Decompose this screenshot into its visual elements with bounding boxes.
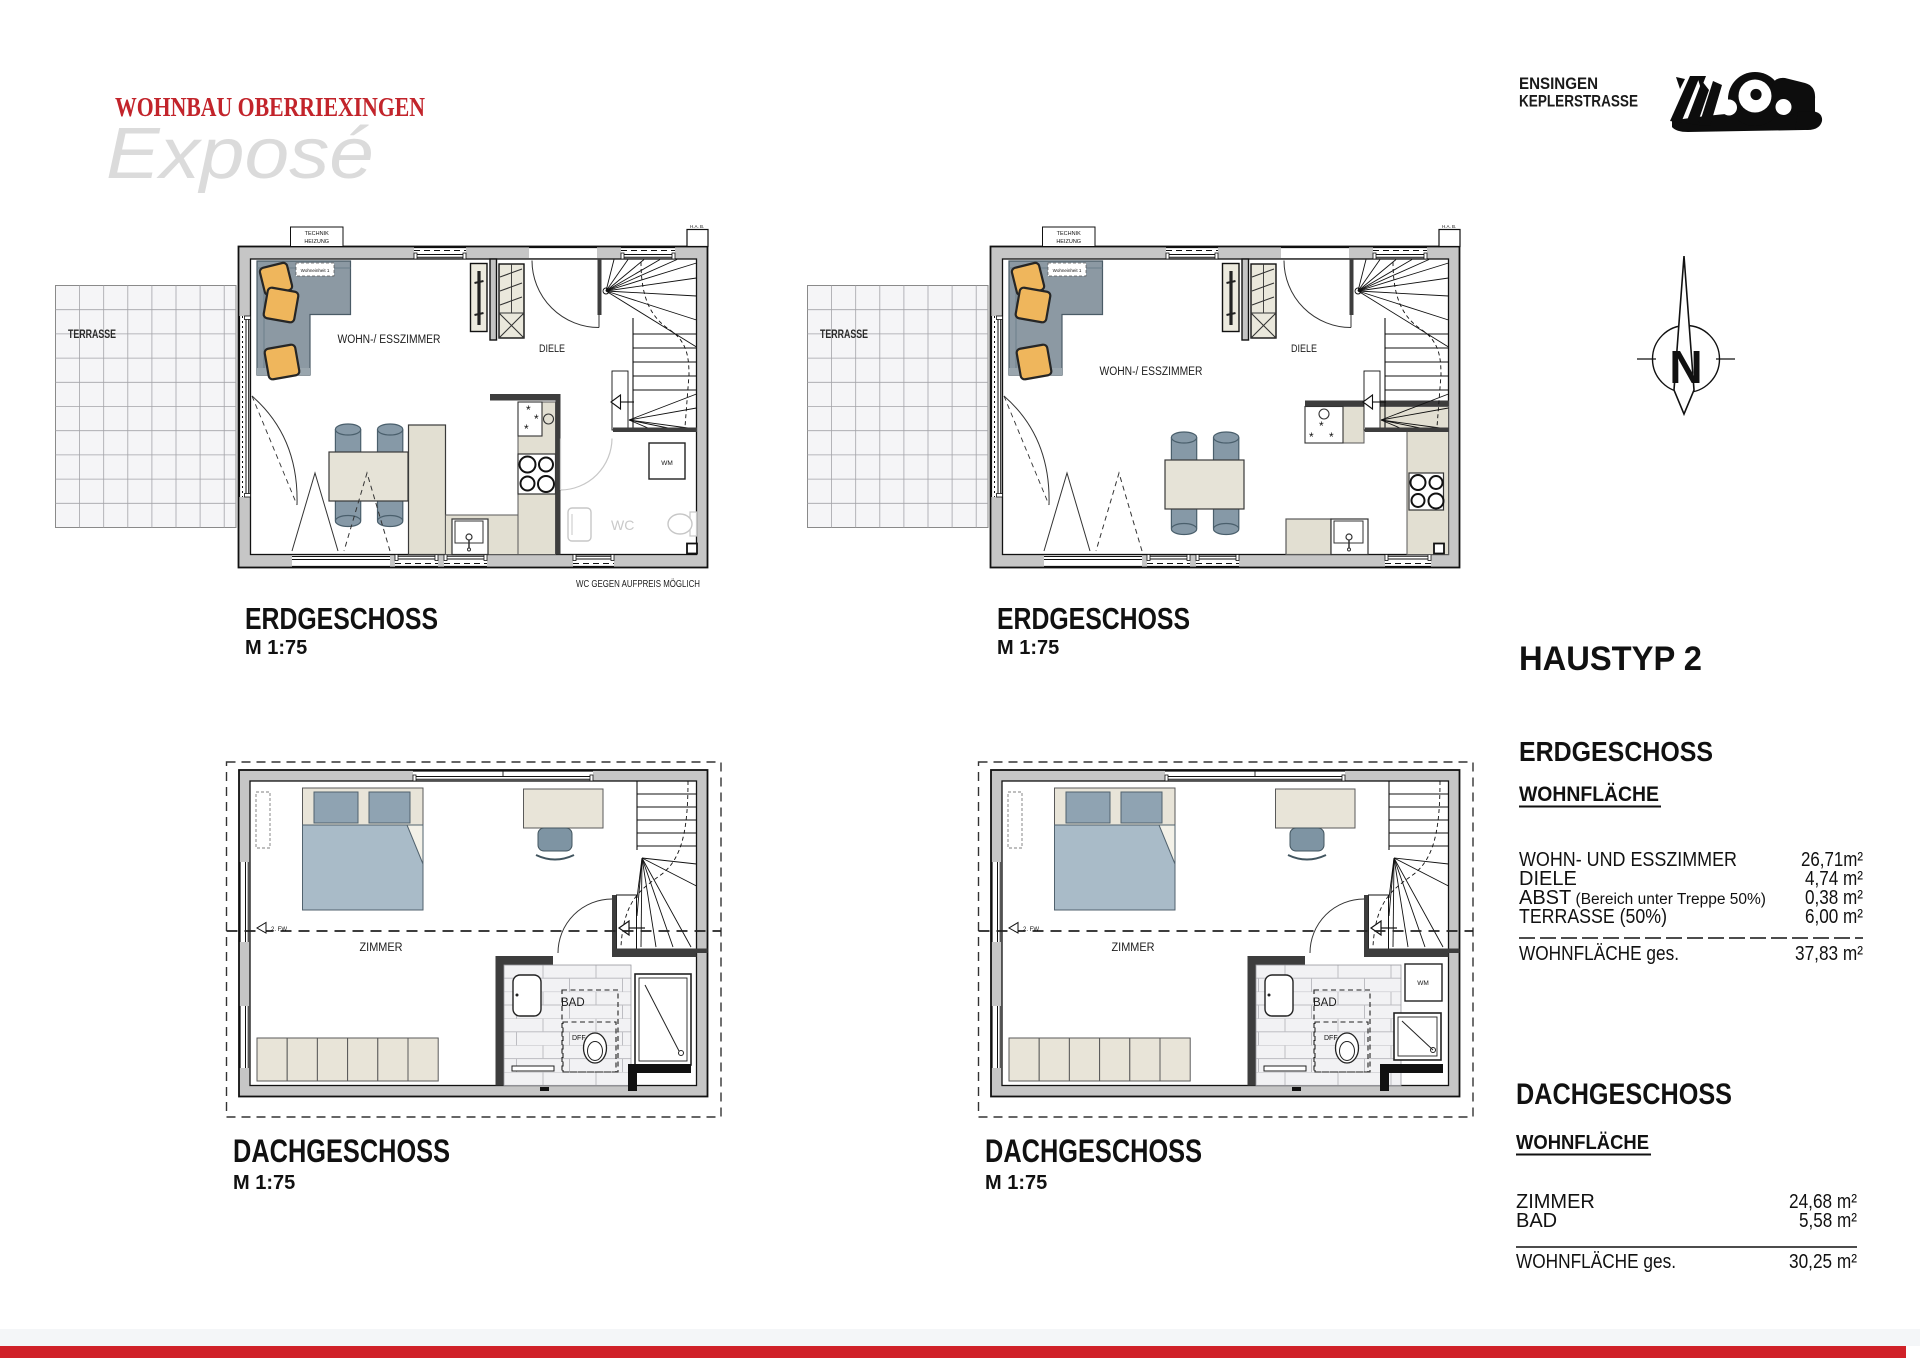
svg-text:TERRASSE: TERRASSE bbox=[68, 329, 116, 341]
svg-text:BAD: BAD bbox=[561, 997, 585, 1009]
svg-text:TECHNIK: TECHNIK bbox=[1057, 231, 1081, 237]
svg-text:6,00 m²: 6,00 m² bbox=[1805, 906, 1863, 928]
svg-text:37,83 m²: 37,83 m² bbox=[1795, 943, 1863, 965]
svg-text:HEIZUNG: HEIZUNG bbox=[304, 239, 329, 245]
svg-text:ZIMMER: ZIMMER bbox=[360, 942, 403, 954]
svg-text:ERDGESCHOSS: ERDGESCHOSS bbox=[245, 601, 438, 636]
svg-text:ENSINGEN: ENSINGEN bbox=[1519, 74, 1598, 93]
svg-text:WOHNFLÄCHE: WOHNFLÄCHE bbox=[1516, 1131, 1649, 1154]
svg-text:DIELE: DIELE bbox=[539, 343, 565, 355]
svg-text:BAD: BAD bbox=[1516, 1210, 1557, 1232]
svg-text:*: * bbox=[1329, 430, 1334, 444]
svg-text:ZIMMER: ZIMMER bbox=[1112, 942, 1155, 954]
svg-text:TERRASSE (50%): TERRASSE (50%) bbox=[1519, 906, 1667, 928]
svg-text:BAD: BAD bbox=[1313, 997, 1337, 1009]
svg-text:M 1:75: M 1:75 bbox=[245, 637, 307, 659]
svg-text:5,58 m²: 5,58 m² bbox=[1799, 1210, 1857, 1232]
svg-text:DACHGESCHOSS: DACHGESCHOSS bbox=[1516, 1078, 1732, 1111]
svg-text:2. FW: 2. FW bbox=[271, 927, 287, 933]
svg-text:*: * bbox=[1319, 419, 1324, 433]
svg-text:WOHNFLÄCHE ges.: WOHNFLÄCHE ges. bbox=[1516, 1251, 1676, 1273]
svg-text:DACHGESCHOSS: DACHGESCHOSS bbox=[985, 1133, 1202, 1169]
svg-text:TERRASSE: TERRASSE bbox=[820, 329, 868, 341]
svg-text:KEPLERSTRASSE: KEPLERSTRASSE bbox=[1519, 92, 1638, 111]
svg-text:ERDGESCHOSS: ERDGESCHOSS bbox=[1519, 736, 1713, 767]
svg-text:2. FW: 2. FW bbox=[1023, 927, 1039, 933]
svg-text:H.A. B.: H.A. B. bbox=[690, 224, 704, 229]
svg-text:H.A. B.: H.A. B. bbox=[1442, 224, 1456, 229]
svg-text:M 1:75: M 1:75 bbox=[997, 637, 1059, 659]
svg-text:WM: WM bbox=[661, 460, 673, 467]
svg-text:WOHN-/ ESSZIMMER: WOHN-/ ESSZIMMER bbox=[1100, 366, 1203, 378]
svg-text:WM: WM bbox=[1417, 980, 1429, 987]
svg-text:WOHNFLÄCHE: WOHNFLÄCHE bbox=[1519, 783, 1659, 806]
svg-text:WC GEGEN AUFPREIS MÖGLICH: WC GEGEN AUFPREIS MÖGLICH bbox=[576, 578, 700, 590]
svg-text:DACHGESCHOSS: DACHGESCHOSS bbox=[233, 1133, 450, 1169]
svg-text:DFF: DFF bbox=[1324, 1035, 1338, 1042]
svg-text:WOHNFLÄCHE ges.: WOHNFLÄCHE ges. bbox=[1519, 943, 1679, 965]
svg-text:M 1:75: M 1:75 bbox=[985, 1172, 1047, 1194]
svg-text:WC: WC bbox=[611, 517, 634, 533]
svg-text:HAUSTYP 2: HAUSTYP 2 bbox=[1519, 640, 1702, 678]
svg-text:ERDGESCHOSS: ERDGESCHOSS bbox=[997, 601, 1190, 636]
svg-text:*: * bbox=[524, 422, 529, 436]
svg-text:N: N bbox=[1669, 341, 1702, 393]
svg-text:Exposé: Exposé bbox=[106, 114, 374, 194]
svg-text:Wohneinheit 1: Wohneinheit 1 bbox=[301, 268, 330, 273]
svg-text:*: * bbox=[534, 412, 539, 426]
svg-text:HEIZUNG: HEIZUNG bbox=[1056, 239, 1081, 245]
svg-text:M 1:75: M 1:75 bbox=[233, 1172, 295, 1194]
svg-text:DFF: DFF bbox=[572, 1035, 586, 1042]
svg-text:*: * bbox=[526, 403, 531, 417]
svg-text:WOHN-/ ESSZIMMER: WOHN-/ ESSZIMMER bbox=[338, 334, 441, 346]
svg-text:DIELE: DIELE bbox=[1291, 343, 1317, 355]
svg-text:TECHNIK: TECHNIK bbox=[305, 231, 329, 237]
svg-text:Wohneinheit 1: Wohneinheit 1 bbox=[1053, 268, 1082, 273]
svg-text:30,25 m²: 30,25 m² bbox=[1789, 1251, 1857, 1273]
svg-text:*: * bbox=[1309, 430, 1314, 444]
